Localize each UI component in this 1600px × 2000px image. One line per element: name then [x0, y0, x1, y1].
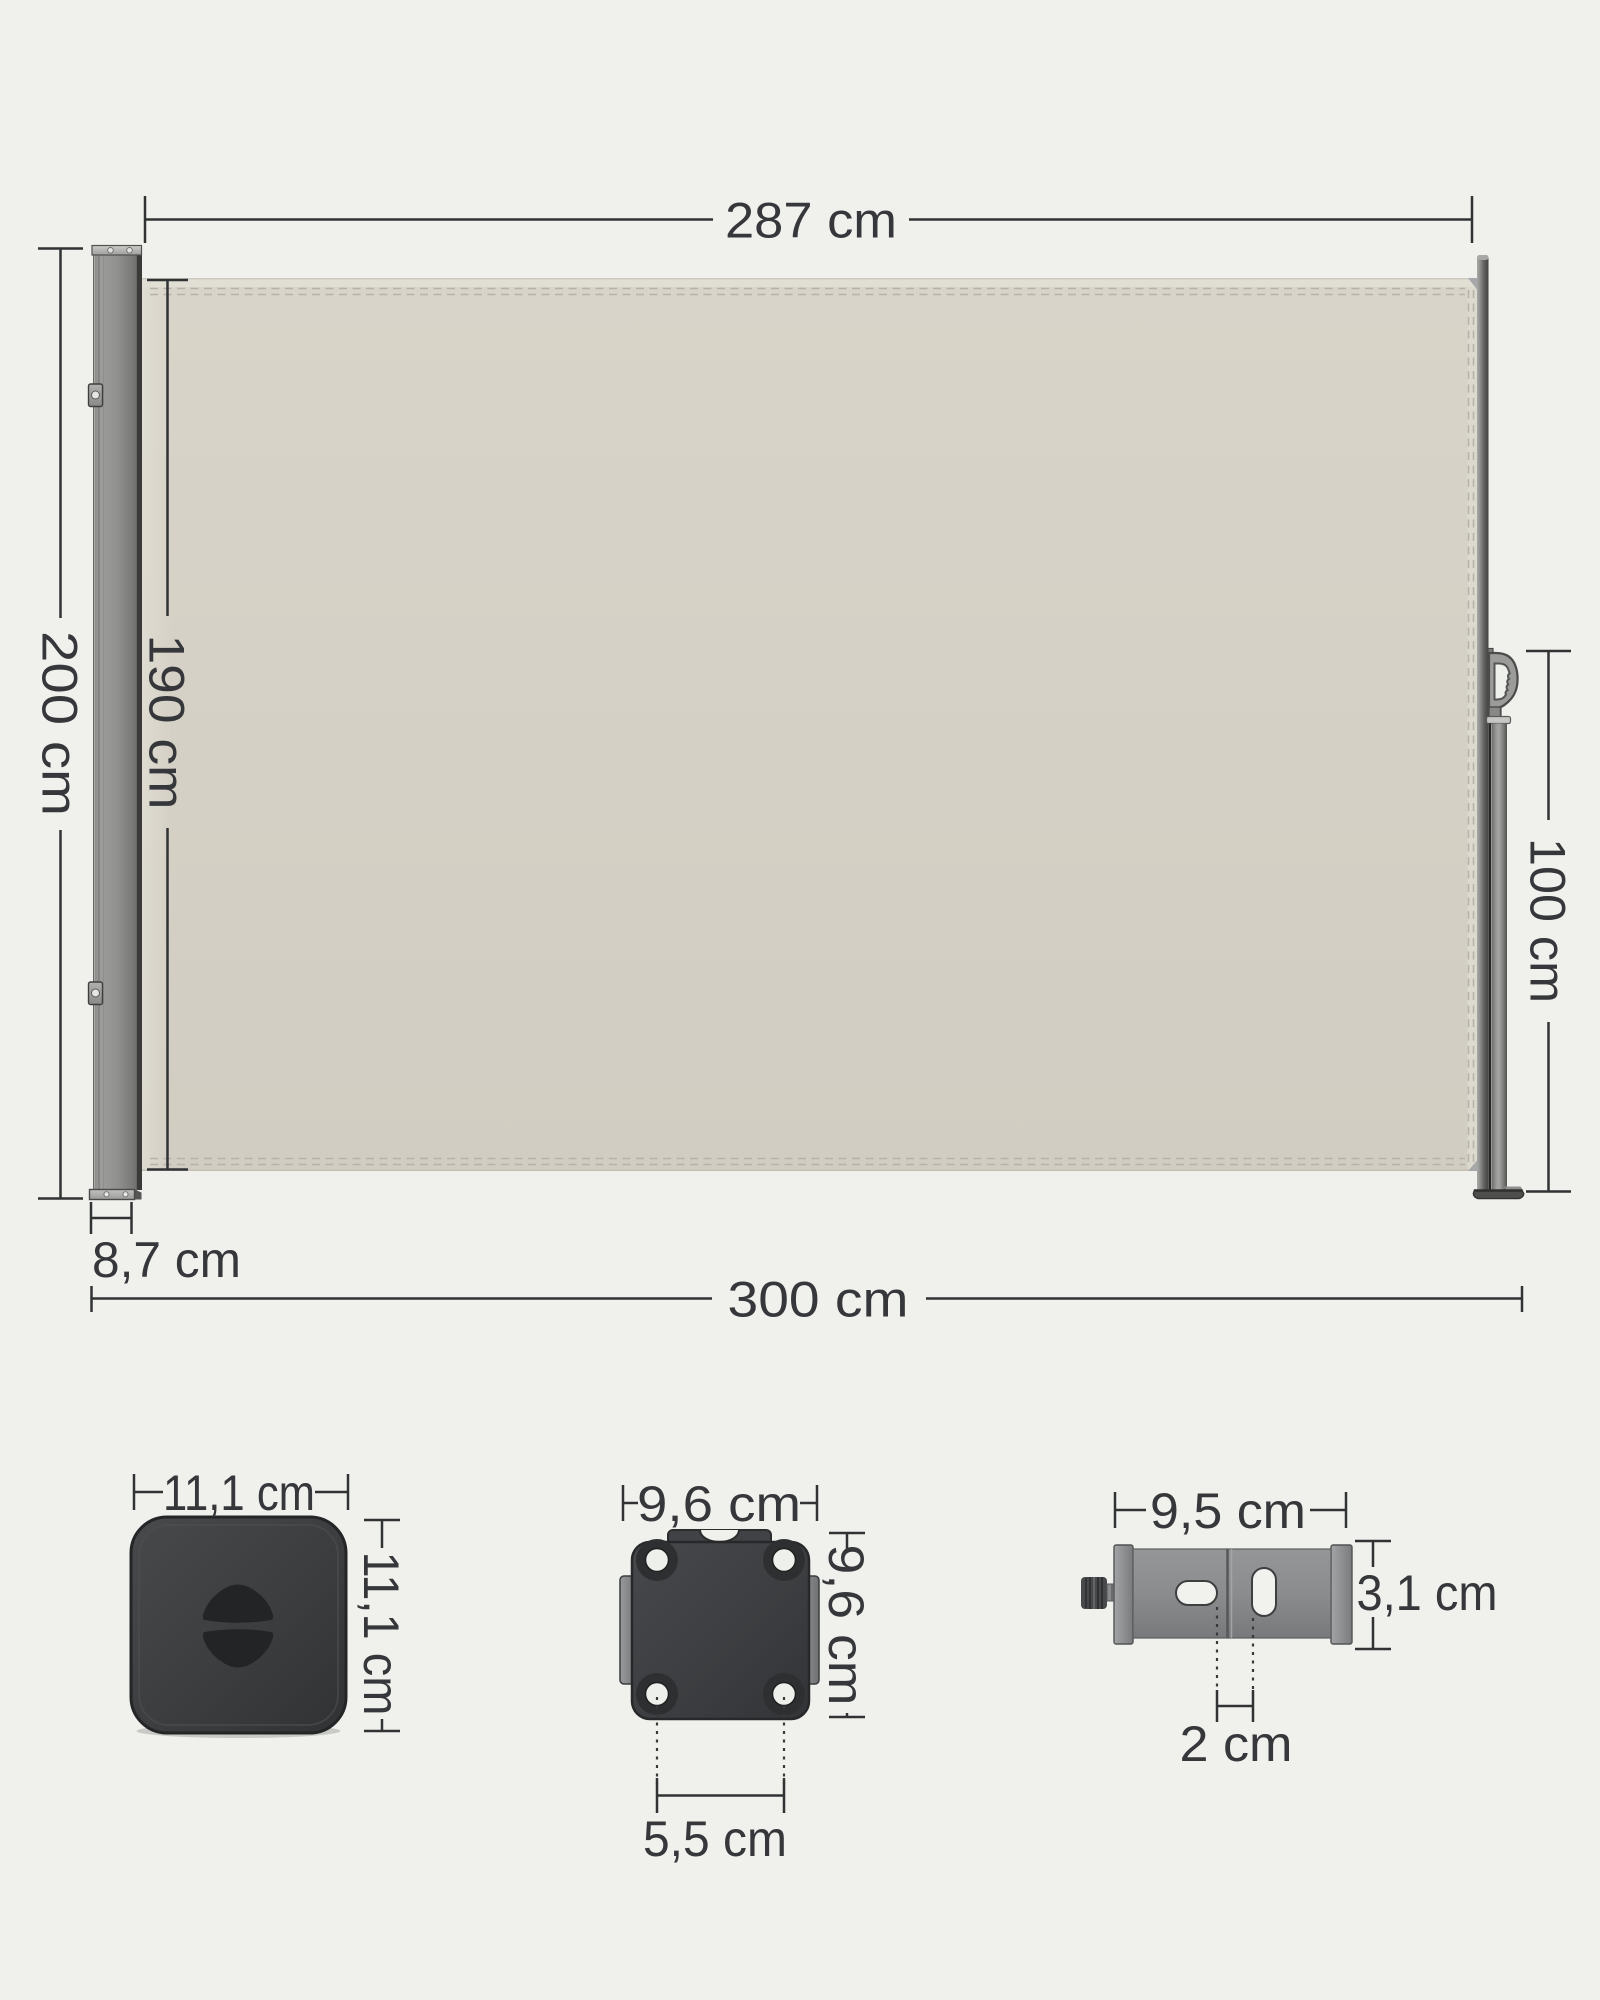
svg-text:8,7 cm: 8,7 cm	[92, 1232, 241, 1288]
svg-text:9,6 cm: 9,6 cm	[637, 1476, 801, 1532]
svg-text:2 cm: 2 cm	[1180, 1716, 1293, 1772]
svg-text:11,1 cm: 11,1 cm	[163, 1465, 315, 1521]
svg-text:11,1 cm: 11,1 cm	[353, 1552, 409, 1716]
svg-text:5,5 cm: 5,5 cm	[643, 1811, 787, 1867]
svg-text:300 cm: 300 cm	[728, 1272, 909, 1328]
svg-text:9,5 cm: 9,5 cm	[1150, 1483, 1306, 1539]
svg-text:287 cm: 287 cm	[725, 193, 897, 249]
svg-text:190 cm: 190 cm	[139, 635, 195, 810]
svg-text:9,6 cm: 9,6 cm	[818, 1545, 874, 1706]
svg-text:100 cm: 100 cm	[1520, 838, 1576, 1003]
svg-text:3,1 cm: 3,1 cm	[1357, 1565, 1498, 1621]
svg-text:200 cm: 200 cm	[32, 631, 88, 816]
